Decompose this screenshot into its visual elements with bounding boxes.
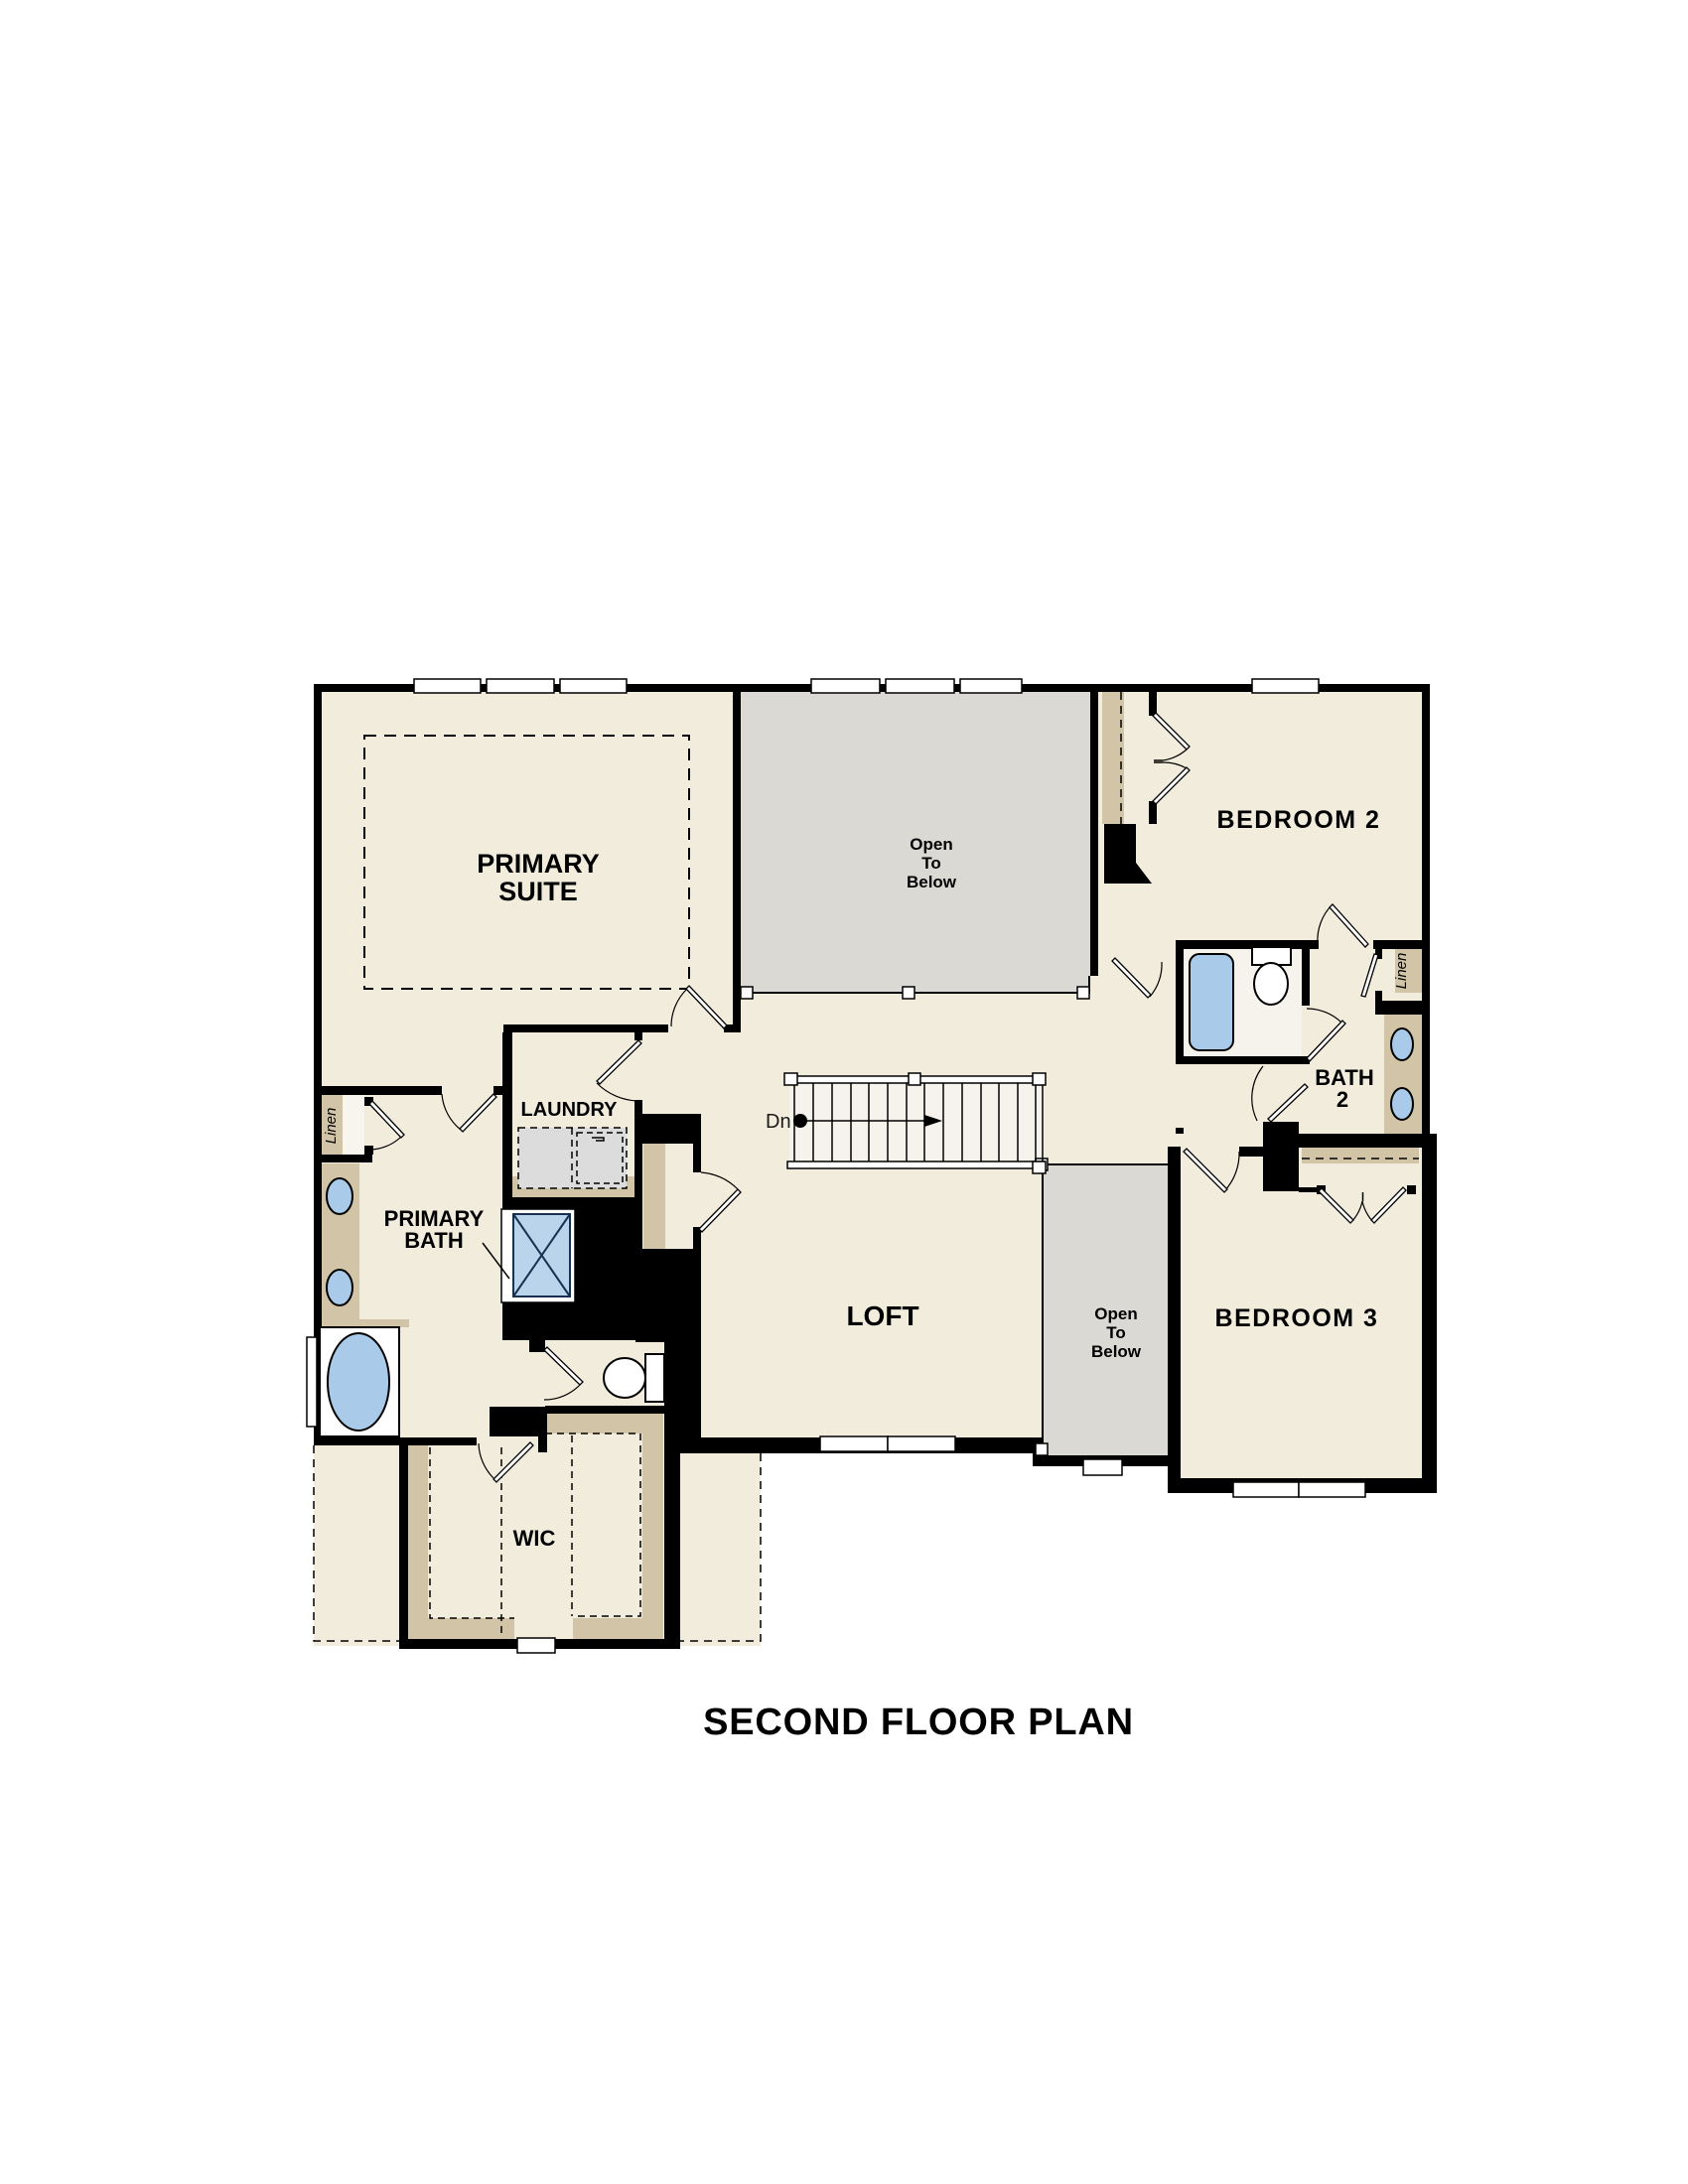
svg-text:SUITE: SUITE [498,877,578,906]
svg-text:BEDROOM 2: BEDROOM 2 [1217,806,1381,834]
svg-text:Open: Open [910,835,952,854]
svg-text:Open: Open [1094,1304,1137,1323]
svg-text:LOFT: LOFT [846,1300,918,1331]
svg-text:Linen: Linen [323,1108,340,1145]
svg-text:To: To [921,854,941,873]
svg-text:PRIMARY: PRIMARY [477,849,600,879]
svg-text:Below: Below [907,873,957,891]
svg-text:BEDROOM 3: BEDROOM 3 [1215,1304,1379,1332]
svg-text:WIC: WIC [513,1526,556,1551]
svg-text:Below: Below [1091,1342,1142,1361]
svg-text:BATH: BATH [404,1228,463,1253]
svg-text:SECOND FLOOR PLAN: SECOND FLOOR PLAN [703,1702,1134,1743]
svg-text:To: To [1106,1323,1126,1342]
svg-text:LAUNDRY: LAUNDRY [520,1099,618,1121]
svg-text:Linen: Linen [1393,953,1410,990]
svg-text:Dn: Dn [766,1111,791,1133]
svg-text:2: 2 [1336,1087,1348,1112]
